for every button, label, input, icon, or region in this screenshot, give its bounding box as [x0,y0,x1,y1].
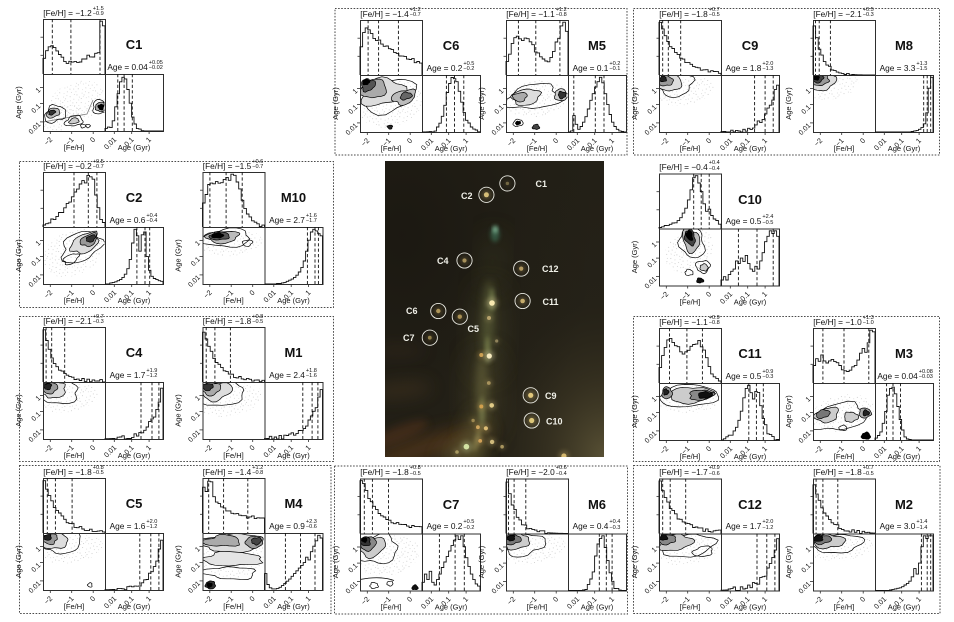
svg-text:C4: C4 [437,256,449,266]
svg-text:Age (Gyr): Age (Gyr) [277,451,310,460]
svg-text:Age (Gyr): Age (Gyr) [118,143,151,152]
svg-text:[Fe/H]: [Fe/H] [223,296,243,305]
svg-text:Age (Gyr): Age (Gyr) [734,603,767,612]
svg-text:Age (Gyr): Age (Gyr) [277,296,310,305]
svg-text:[Fe/H]: [Fe/H] [834,452,854,461]
svg-text:Age (Gyr): Age (Gyr) [118,451,151,460]
svg-text:Age (Gyr): Age (Gyr) [435,603,468,612]
svg-text:Age (Gyr): Age (Gyr) [277,602,310,611]
svg-text:Age (Gyr): Age (Gyr) [581,144,614,153]
svg-text:Age (Gyr): Age (Gyr) [14,545,23,578]
svg-text:Age (Gyr): Age (Gyr) [630,395,639,428]
svg-text:[Fe/H]: [Fe/H] [527,144,547,153]
svg-text:Age (Gyr): Age (Gyr) [734,452,767,461]
svg-text:Age (Gyr): Age (Gyr) [14,239,23,272]
svg-text:C2: C2 [461,191,473,201]
svg-text:Age (Gyr): Age (Gyr) [888,144,921,153]
svg-text:[Fe/H]: [Fe/H] [834,603,854,612]
svg-text:Age (Gyr): Age (Gyr) [331,87,340,120]
svg-text:[Fe/H]: [Fe/H] [680,298,700,307]
svg-text:Age (Gyr): Age (Gyr) [630,87,639,120]
svg-text:Age (Gyr): Age (Gyr) [630,240,639,273]
svg-text:[Fe/H]: [Fe/H] [223,451,243,460]
svg-text:Age (Gyr): Age (Gyr) [581,603,614,612]
svg-text:Age (Gyr): Age (Gyr) [14,394,23,427]
svg-text:Age (Gyr): Age (Gyr) [734,298,767,307]
svg-text:C12: C12 [542,264,559,274]
svg-text:C11: C11 [543,297,559,307]
svg-text:[Fe/H]: [Fe/H] [64,143,84,152]
svg-text:Age (Gyr): Age (Gyr) [734,144,767,153]
svg-text:[Fe/H]: [Fe/H] [64,602,84,611]
svg-text:[Fe/H]: [Fe/H] [381,144,401,153]
svg-text:Age (Gyr): Age (Gyr) [784,545,793,578]
svg-text:[Fe/H]: [Fe/H] [680,603,700,612]
svg-text:C10: C10 [546,417,563,427]
svg-text:C1: C1 [536,179,548,189]
svg-text:Age (Gyr): Age (Gyr) [14,86,23,119]
svg-text:Age (Gyr): Age (Gyr) [174,239,183,272]
svg-text:Age (Gyr): Age (Gyr) [477,545,486,578]
svg-text:Age (Gyr): Age (Gyr) [888,452,921,461]
svg-text:[Fe/H]: [Fe/H] [680,452,700,461]
svg-text:Age (Gyr): Age (Gyr) [174,394,183,427]
svg-text:[Fe/H]: [Fe/H] [527,603,547,612]
svg-text:Age (Gyr): Age (Gyr) [477,87,486,120]
svg-text:Age (Gyr): Age (Gyr) [784,395,793,428]
svg-text:Age (Gyr): Age (Gyr) [630,545,639,578]
svg-text:C9: C9 [545,391,557,401]
svg-text:Age (Gyr): Age (Gyr) [888,603,921,612]
svg-text:C7: C7 [403,333,415,343]
svg-text:C5: C5 [468,324,480,334]
svg-text:[Fe/H]: [Fe/H] [834,144,854,153]
svg-text:Age (Gyr): Age (Gyr) [174,545,183,578]
svg-text:C6: C6 [406,306,418,316]
svg-text:Age (Gyr): Age (Gyr) [118,602,151,611]
svg-text:Age (Gyr): Age (Gyr) [118,296,151,305]
svg-text:Age (Gyr): Age (Gyr) [435,144,468,153]
svg-text:Age (Gyr): Age (Gyr) [331,545,340,578]
svg-text:[Fe/H]: [Fe/H] [680,144,700,153]
svg-text:Age (Gyr): Age (Gyr) [784,87,793,120]
svg-text:[Fe/H]: [Fe/H] [64,296,84,305]
svg-text:[Fe/H]: [Fe/H] [381,603,401,612]
svg-text:[Fe/H]: [Fe/H] [223,602,243,611]
svg-text:[Fe/H]: [Fe/H] [64,451,84,460]
